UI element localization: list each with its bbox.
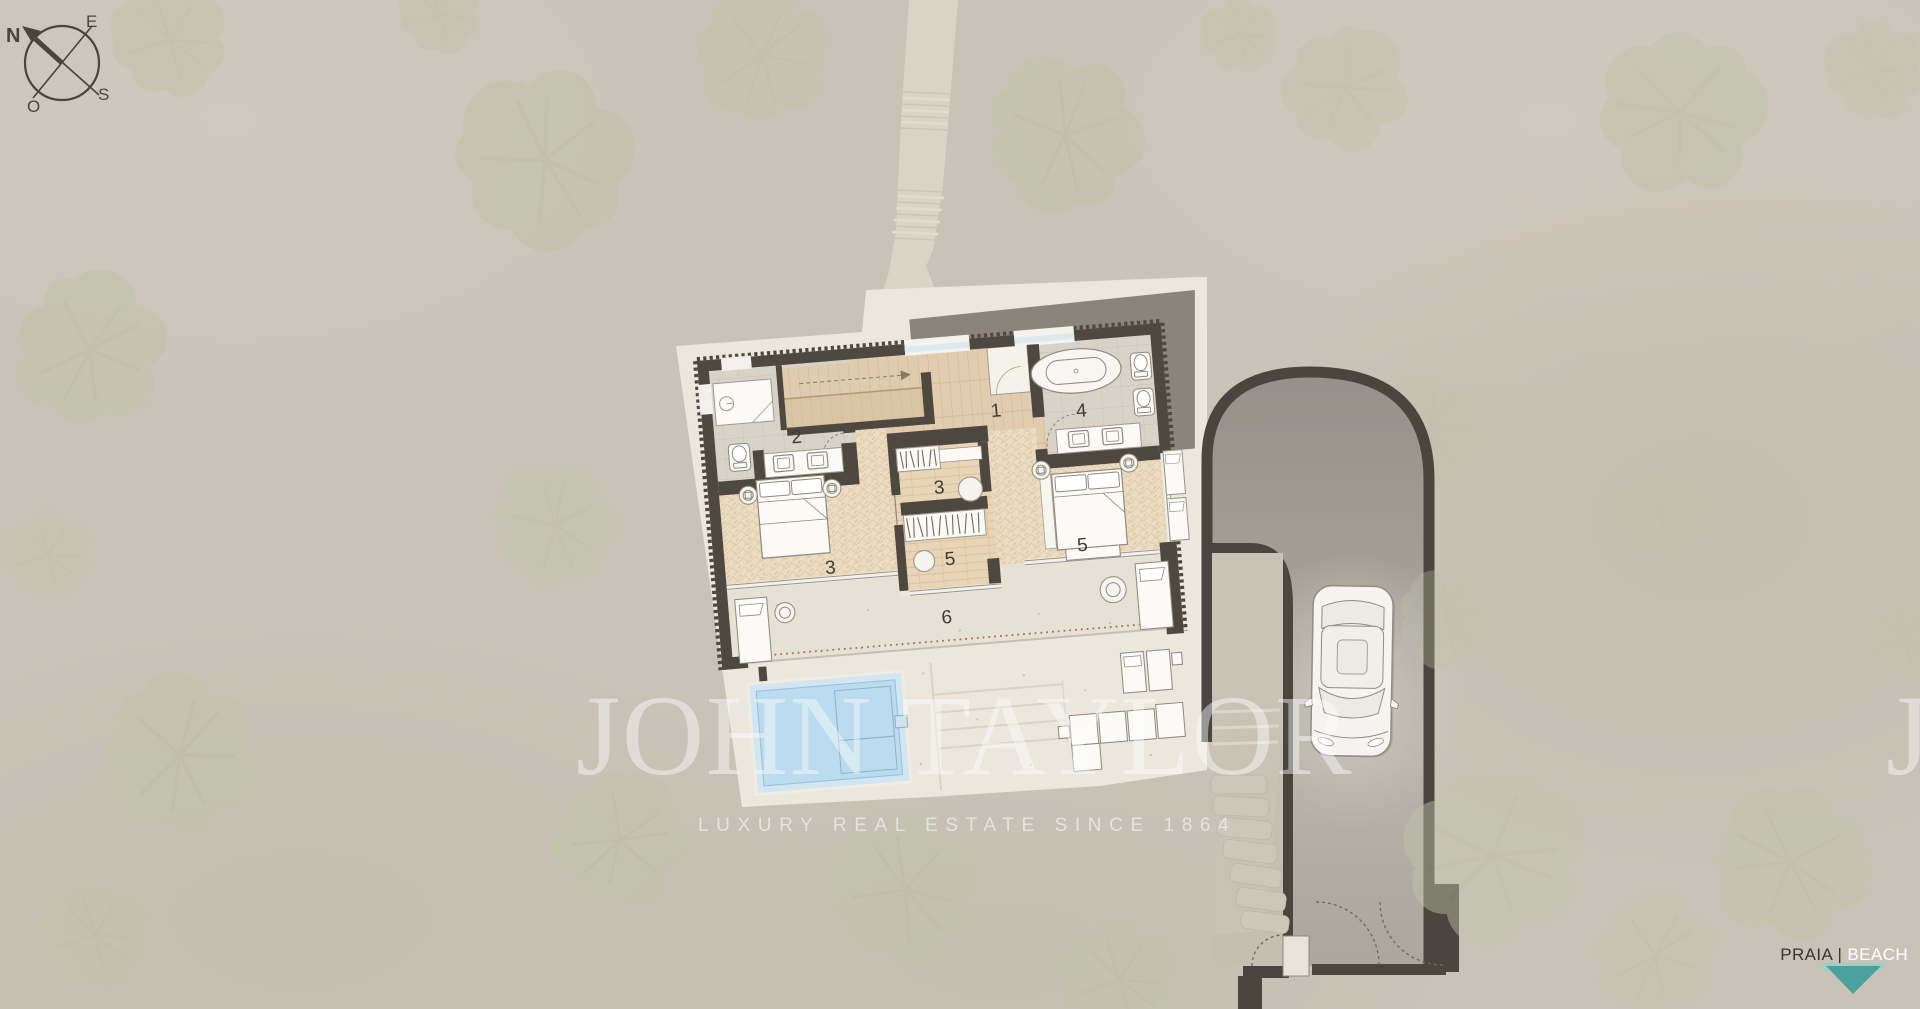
svg-text:3: 3	[933, 477, 945, 499]
svg-text:2: 2	[790, 427, 802, 449]
svg-text:5: 5	[944, 549, 956, 571]
svg-text:O: O	[27, 97, 40, 116]
svg-text:JOHN TAYLOR: JOHN TAYLOR	[576, 672, 1353, 799]
svg-text:S: S	[98, 85, 109, 104]
svg-text:5: 5	[1076, 535, 1088, 557]
svg-text:4: 4	[1075, 400, 1088, 422]
svg-text:1: 1	[990, 400, 1002, 422]
svg-text:6: 6	[941, 607, 953, 629]
svg-text:PRAIA | BEACH: PRAIA | BEACH	[1780, 945, 1908, 964]
svg-text:LUXURY REAL ESTATE SINCE 1864: LUXURY REAL ESTATE SINCE 1864	[698, 815, 1236, 836]
svg-text:E: E	[86, 12, 97, 31]
svg-text:3: 3	[824, 557, 836, 579]
svg-text:JO: JO	[1886, 672, 1920, 799]
svg-text:N: N	[6, 25, 20, 47]
